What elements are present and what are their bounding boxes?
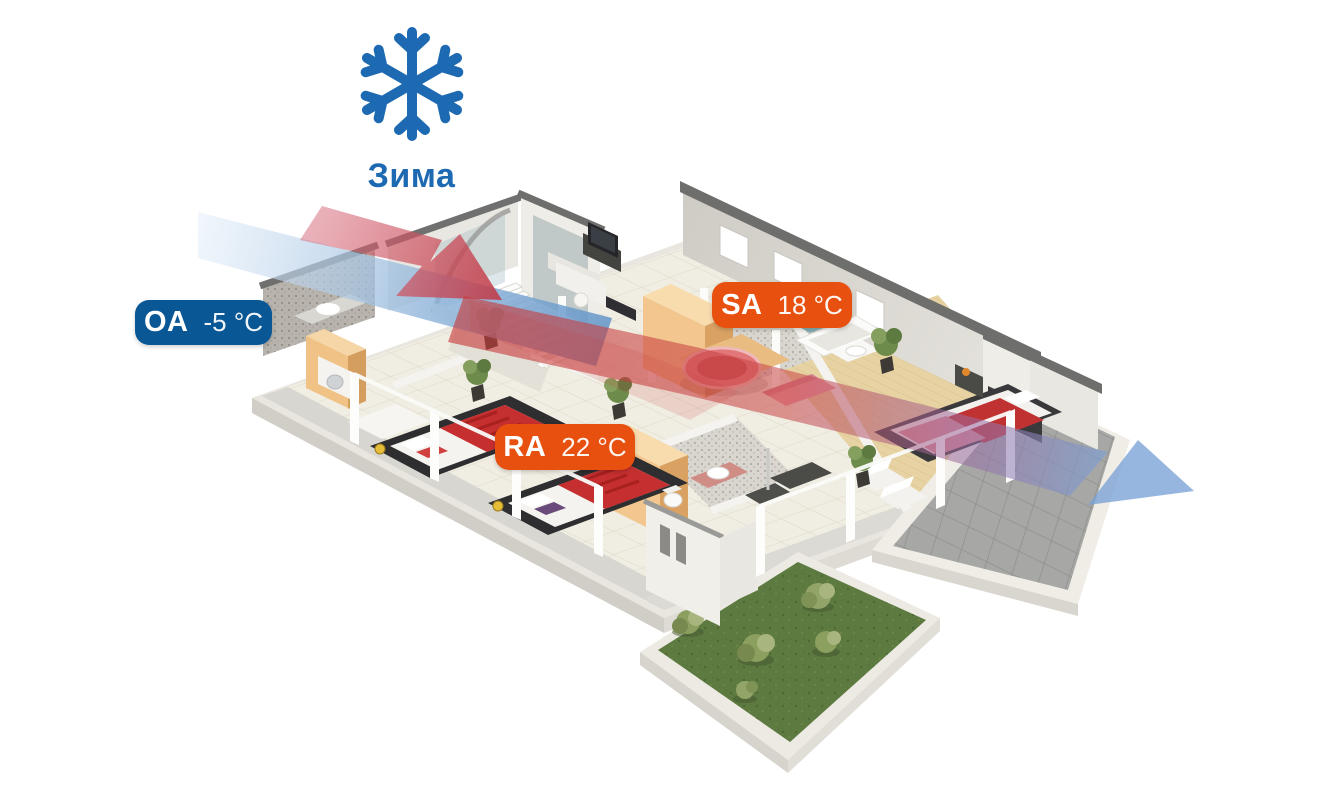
sa-temperature: 18 °C: [777, 290, 842, 321]
supply-air-badge: SA 18 °C: [712, 282, 852, 328]
return-air-badge: RA 22 °C: [495, 424, 635, 470]
ra-temperature: 22 °C: [561, 432, 626, 463]
floor-lamp: [574, 293, 588, 307]
slit-window: [676, 532, 686, 565]
sa-code: SA: [721, 289, 762, 322]
snowflake-icon: [352, 24, 472, 144]
ra-code: RA: [503, 431, 546, 464]
oa-temperature: -5 °C: [203, 307, 263, 338]
season-label: Зима: [344, 157, 479, 196]
oa-code: OA: [144, 306, 189, 339]
house-cutaway-illustration: [0, 0, 1340, 812]
slit-window: [660, 524, 670, 557]
season-indicator: Зима: [344, 24, 479, 196]
winter-airflow-diagram: Зима OA -5 °C SA 18 °C RA 22 °C: [0, 0, 1340, 812]
outdoor-air-badge: OA -5 °C: [135, 300, 272, 345]
